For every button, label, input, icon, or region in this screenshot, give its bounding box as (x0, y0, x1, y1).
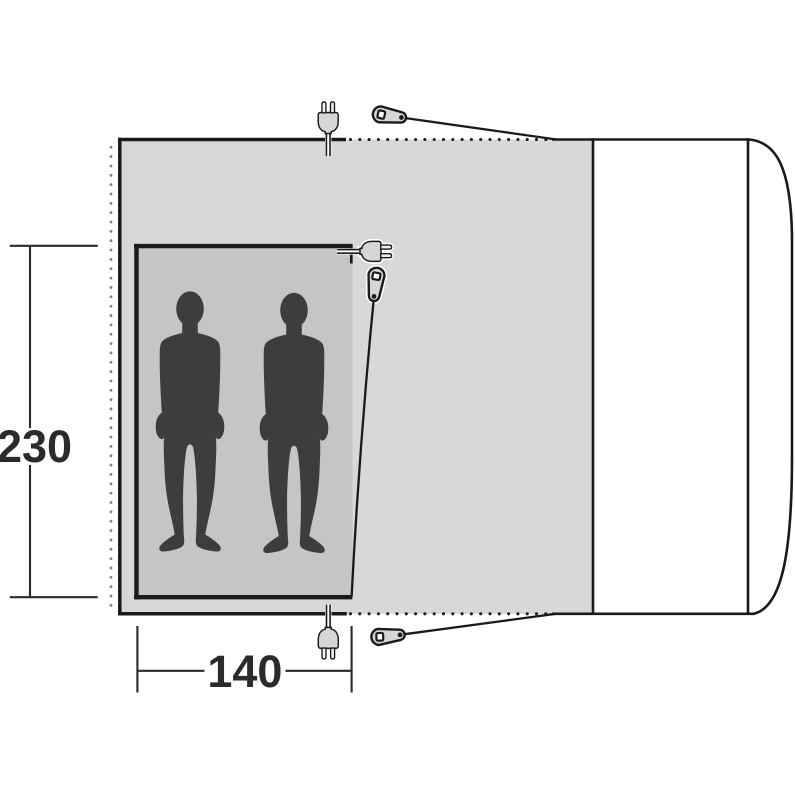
svg-text:230: 230 (0, 421, 72, 472)
svg-text:140: 140 (207, 646, 282, 697)
